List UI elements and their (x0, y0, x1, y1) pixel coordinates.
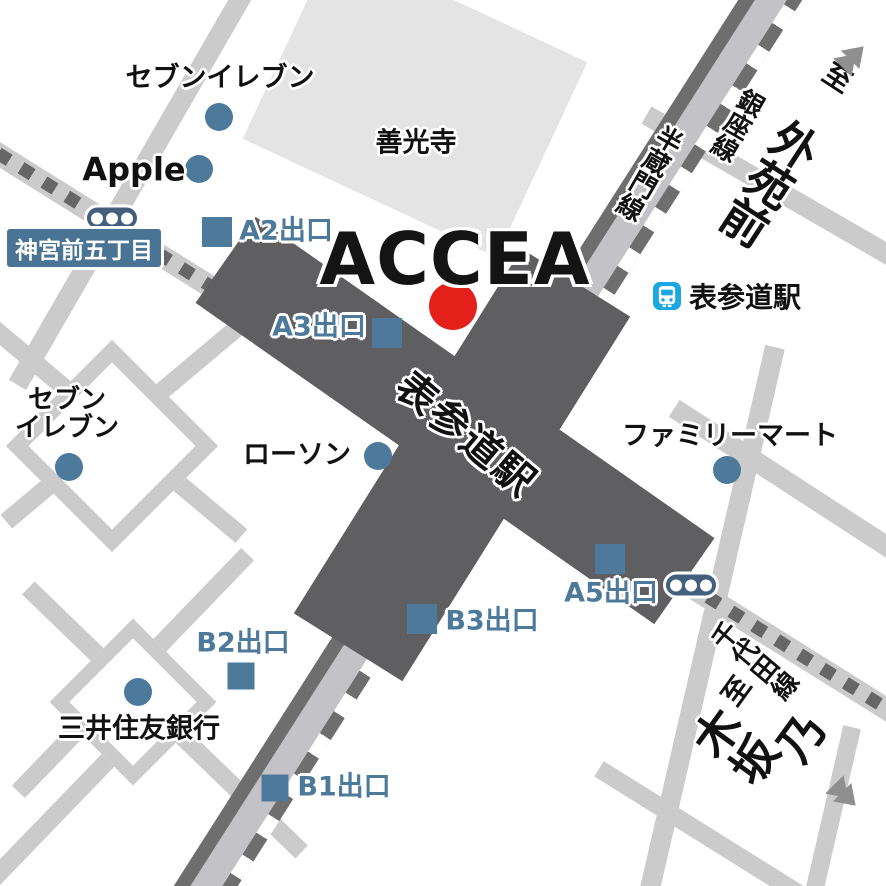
store-marker-seven-eleven-west (55, 453, 83, 481)
exit-square-a5 (595, 544, 625, 574)
temple-label: 善光寺 (376, 128, 457, 157)
exit-square-a3 (372, 318, 402, 348)
map-canvas: ACCEA 表参道駅 善光寺 セブンイレブン Apple 神宮前五丁目 A2出口… (0, 0, 886, 886)
store-marker-apple (185, 155, 213, 183)
exit-label-b1: B1出口 (297, 772, 390, 801)
store-marker-lawson (364, 442, 392, 470)
traffic-light-icon (663, 572, 719, 599)
store-label-family-mart: ファミリーマート (622, 421, 838, 450)
exit-label-a2: A2出口 (239, 216, 333, 245)
exit-label-a3: A3出口 (272, 312, 366, 341)
store-label-apple: Apple (82, 153, 185, 188)
exit-square-b1 (262, 775, 289, 802)
store-label-seven-eleven-west: セブン イレブン (15, 386, 119, 442)
metro-station-marker: 表参道駅 (653, 276, 801, 316)
intersection-badge: 神宮前五丁目 (4, 226, 164, 270)
exit-square-b2 (228, 663, 255, 690)
metro-station-name: 表参道駅 (689, 276, 801, 316)
accea-logo: ACCEA (319, 217, 590, 301)
exit-label-b3: B3出口 (445, 606, 538, 635)
store-marker-smbc (124, 678, 152, 706)
store-label-line2: イレブン (15, 414, 119, 442)
store-marker-family-mart (713, 456, 741, 484)
exit-label-a5: A5出口 (564, 578, 658, 607)
direction-destination: 乃木坂 (680, 699, 833, 797)
metro-icon (653, 282, 681, 310)
store-label-lawson: ローソン (243, 440, 351, 469)
exit-square-a2 (202, 217, 232, 247)
exit-label-b2: B2出口 (196, 628, 289, 657)
exit-square-b3 (407, 604, 437, 634)
store-marker-seven-eleven-north (205, 103, 233, 131)
store-label-line1: セブン (15, 386, 119, 414)
store-label-seven-eleven-north: セブンイレブン (126, 63, 315, 92)
store-label-smbc: 三井住友銀行 (58, 714, 220, 743)
